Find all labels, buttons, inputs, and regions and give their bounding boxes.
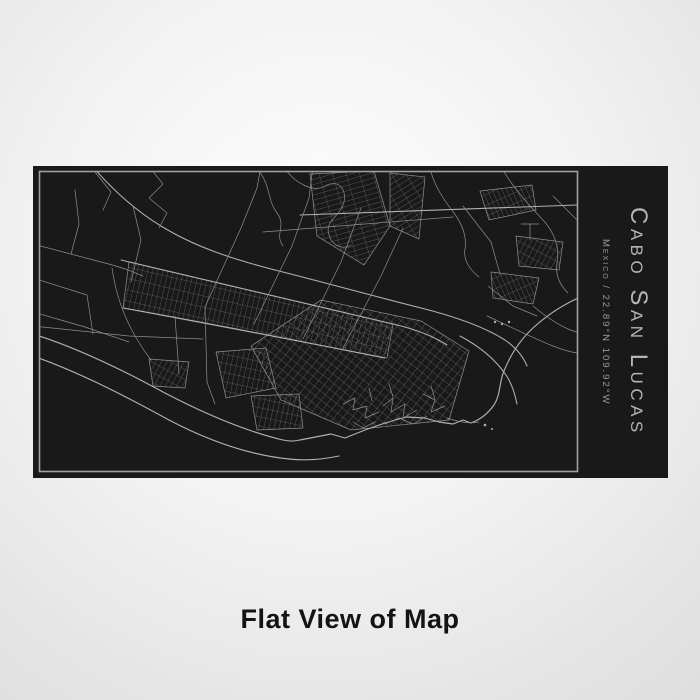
- caption: Flat View of Map: [0, 604, 700, 635]
- engraving-text-band: Mexico / 22.89°N 109.92°W Cabo San Lucas: [578, 166, 668, 478]
- street-grid-patches: [123, 171, 563, 430]
- engraving-title: Cabo San Lucas: [624, 207, 652, 437]
- street-map: [33, 166, 668, 478]
- engraved-map-panel: Mexico / 22.89°N 109.92°W Cabo San Lucas: [33, 166, 668, 478]
- engraving-subtitle: Mexico / 22.89°N 109.92°W: [600, 239, 611, 406]
- product-mockup-background: Mexico / 22.89°N 109.92°W Cabo San Lucas…: [0, 0, 700, 700]
